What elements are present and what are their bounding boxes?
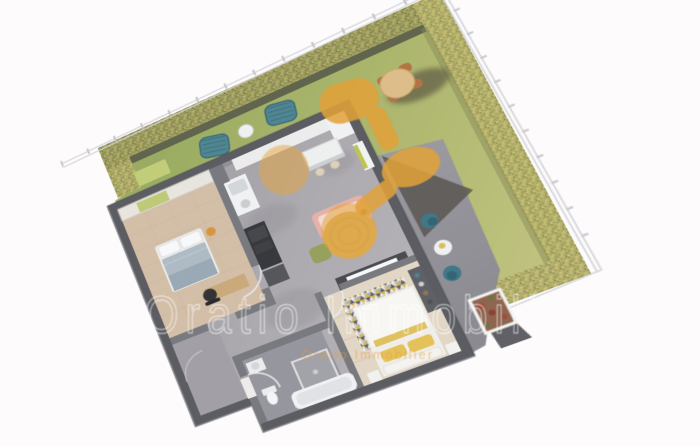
svg-text:Oratio Immobilier: Oratio Immobilier bbox=[144, 286, 597, 344]
svg-text:Oratio Immobilier: Oratio Immobilier bbox=[302, 348, 435, 362]
